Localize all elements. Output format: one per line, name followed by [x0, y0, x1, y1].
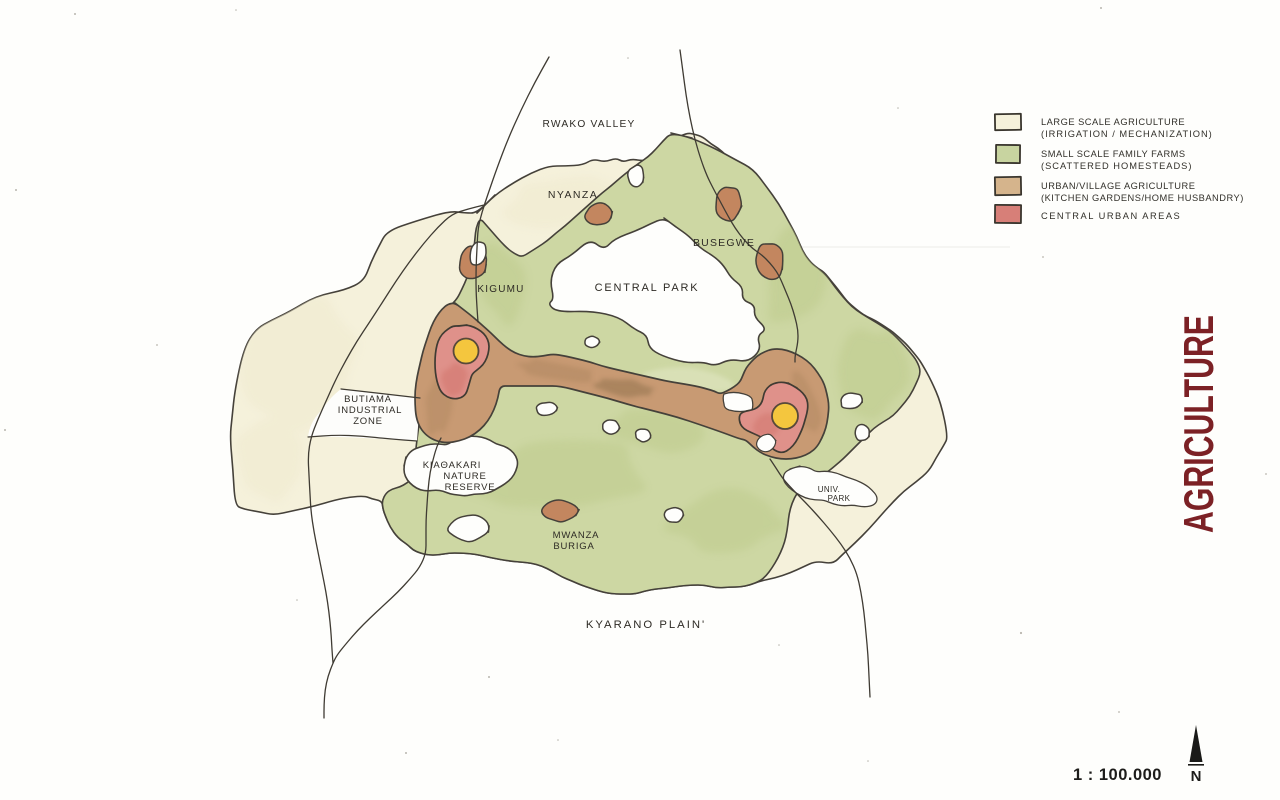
svg-text:RWAKO VALLEY: RWAKO VALLEY [543, 119, 636, 130]
svg-text:MWANZA: MWANZA [553, 530, 600, 541]
svg-text:(IRRIGATION / MECHANIZATION): (IRRIGATION / MECHANIZATION) [1041, 129, 1213, 139]
svg-text:AGRICULTURE: AGRICULTURE [1175, 315, 1222, 533]
svg-text:KIGUMU: KIGUMU [477, 284, 524, 295]
svg-text:BUTIAMA: BUTIAMA [344, 394, 392, 405]
svg-text:1 : 100.000: 1 : 100.000 [1073, 766, 1162, 784]
svg-text:UNIV.: UNIV. [818, 485, 841, 494]
svg-text:LARGE SCALE AGRICULTURE: LARGE SCALE AGRICULTURE [1041, 117, 1185, 127]
svg-text:N: N [1191, 768, 1202, 785]
svg-text:INDUSTRIAL: INDUSTRIAL [338, 405, 402, 416]
svg-text:CENTRAL PARK: CENTRAL PARK [595, 282, 700, 294]
svg-text:CENTRAL URBAN AREAS: CENTRAL URBAN AREAS [1041, 211, 1181, 221]
svg-text:BUSEGWE: BUSEGWE [693, 237, 755, 249]
svg-text:PARK: PARK [828, 494, 851, 503]
svg-text:KYARANO PLAIN': KYARANO PLAIN' [586, 619, 706, 631]
svg-text:(SCATTERED HOMESTEADS): (SCATTERED HOMESTEADS) [1041, 161, 1192, 171]
svg-text:BURIGA: BURIGA [553, 541, 594, 552]
svg-text:(KITCHEN GARDENS/HOME HUSBANDR: (KITCHEN GARDENS/HOME HUSBANDRY) [1041, 193, 1244, 203]
svg-text:NYANZA: NYANZA [548, 189, 598, 201]
svg-text:URBAN/VILLAGE AGRICULTURE: URBAN/VILLAGE AGRICULTURE [1041, 181, 1195, 191]
svg-text:RESERVE: RESERVE [445, 482, 496, 493]
svg-text:KIAΘAKARI: KIAΘAKARI [423, 460, 481, 471]
svg-text:ZONE: ZONE [353, 416, 383, 427]
svg-text:NATURE: NATURE [443, 471, 486, 482]
svg-text:SMALL SCALE FAMILY FARMS: SMALL SCALE FAMILY FARMS [1041, 149, 1186, 159]
